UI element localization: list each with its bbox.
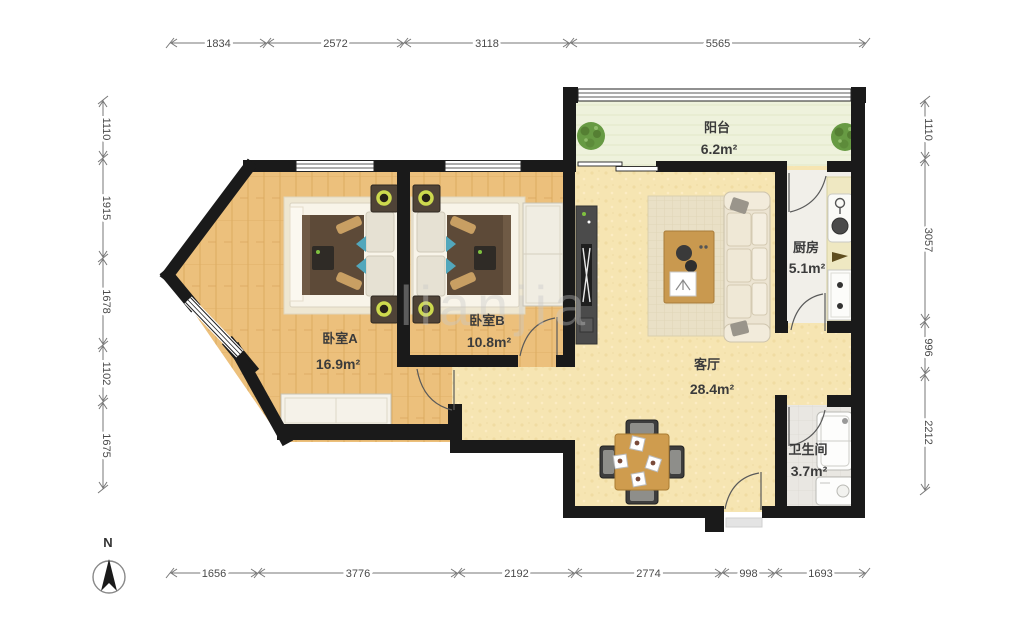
dim-label-right-0: 1110: [922, 118, 934, 141]
compass-label: N: [103, 535, 112, 550]
dim-label-bottom-4: 998: [739, 568, 757, 580]
dim-label-top-2: 3118: [475, 38, 499, 50]
room-area-kitchen: 5.1m²: [789, 260, 826, 276]
dim-label-left-0: 1110: [100, 118, 112, 141]
dim-label-left-3: 1102: [100, 362, 112, 386]
dim-label-right-2: 996: [922, 338, 934, 356]
dim-label-bottom-1: 3776: [346, 568, 370, 580]
dim-label-top-1: 2572: [323, 38, 347, 50]
kitchen-counter: [827, 177, 854, 321]
dim-label-top-3: 5565: [706, 38, 730, 50]
room-label-balcony: 阳台: [704, 120, 730, 135]
coffee-table: [664, 231, 714, 303]
dim-label-bottom-3: 2774: [636, 568, 660, 580]
wardrobe-bedroom-a: [281, 394, 391, 427]
dim-label-right-1: 3057: [922, 228, 934, 252]
window-bedroom-a: [296, 161, 374, 172]
room-area-living: 28.4m²: [690, 381, 735, 397]
dim-label-right-3: 2212: [922, 420, 934, 444]
dim-label-bottom-2: 2192: [504, 568, 528, 580]
sink-icon: [832, 218, 848, 234]
room-label-living: 客厅: [694, 357, 720, 372]
floor-plan-page: lianjia 卧室A 16.9m² 卧室B 10.8m² 客厅 28.4m² …: [0, 0, 1016, 625]
room-area-bathroom: 3.7m²: [791, 463, 828, 479]
dim-label-bottom-0: 1656: [202, 568, 226, 580]
stove-icon: [828, 270, 853, 320]
bathroom-fixtures: [816, 412, 854, 505]
room-area-bedroom-a: 16.9m²: [316, 356, 361, 372]
lamp-icon: [420, 192, 432, 204]
room-area-bedroom-b: 10.8m²: [467, 334, 512, 350]
dim-label-left-4: 1675: [100, 433, 112, 457]
lamp-icon: [378, 192, 390, 204]
room-area-balcony: 6.2m²: [701, 141, 738, 157]
balcony-plant-left: [577, 122, 605, 150]
dimension-line-right: 111030579962212: [920, 96, 934, 495]
dimension-line-top: 1834257231185565: [166, 38, 870, 50]
room-label-bathroom: 卫生间: [788, 442, 827, 457]
bed-a: [284, 185, 398, 323]
compass: N: [93, 535, 125, 593]
room-label-bedroom-a: 卧室A: [322, 331, 358, 346]
dimension-line-left: 11101915167811021675: [98, 96, 112, 493]
room-label-bedroom-b: 卧室B: [469, 313, 504, 328]
dim-label-left-2: 1678: [100, 289, 112, 313]
entrance-stoop: [726, 518, 762, 527]
window-bedroom-b: [445, 161, 521, 172]
dim-label-bottom-5: 1693: [808, 568, 832, 580]
dimension-line-bottom: 16563776219227749981693: [166, 568, 870, 580]
dim-label-top-0: 1834: [206, 38, 230, 50]
dim-label-left-1: 1915: [100, 196, 112, 220]
lamp-icon: [378, 303, 390, 315]
sofa: [724, 192, 770, 342]
balcony-railing: [578, 89, 851, 101]
room-label-kitchen: 厨房: [793, 240, 819, 255]
floor-plan-svg: lianjia 卧室A 16.9m² 卧室B 10.8m² 客厅 28.4m² …: [0, 0, 1016, 625]
